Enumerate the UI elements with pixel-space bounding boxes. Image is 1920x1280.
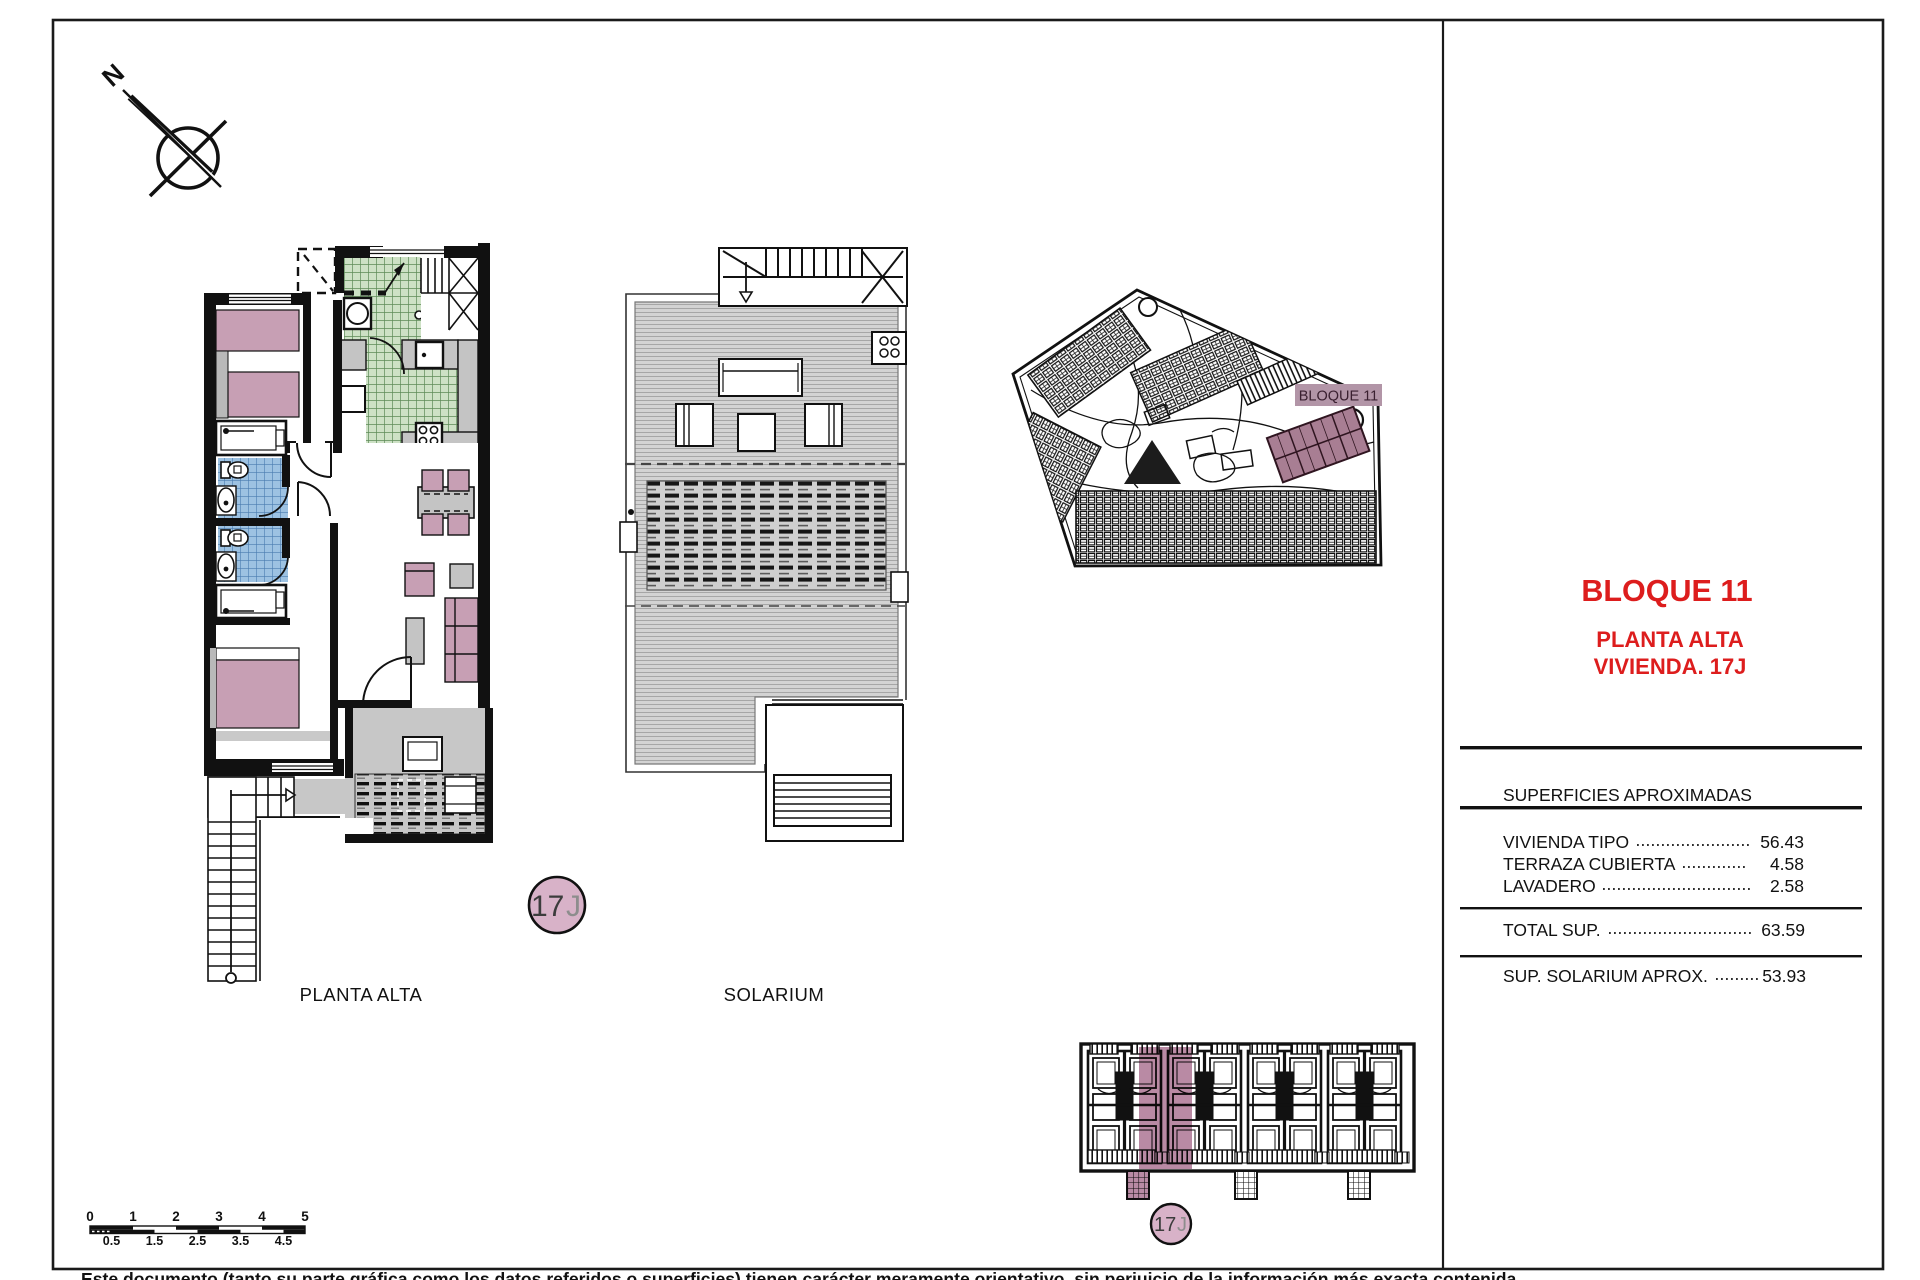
svg-text:2: 2 [172,1209,180,1224]
svg-text:4.5: 4.5 [275,1234,292,1248]
svg-text:3.5: 3.5 [232,1234,249,1248]
svg-text:Este documento (tanto su parte: Este documento (tanto su parte gráfica c… [81,1269,1516,1280]
svg-text:4.58: 4.58 [1770,854,1804,874]
svg-text:J: J [1177,1214,1187,1236]
svg-text:5: 5 [301,1209,309,1224]
svg-text:63.59: 63.59 [1761,920,1805,940]
svg-text:VIVIENDA TIPO: VIVIENDA TIPO [1503,832,1629,852]
svg-text:2.58: 2.58 [1770,876,1804,896]
svg-text:1: 1 [129,1209,137,1224]
svg-text:SUP. SOLARIUM APROX.: SUP. SOLARIUM APROX. [1503,966,1708,986]
svg-text:TOTAL SUP.: TOTAL SUP. [1503,920,1601,940]
svg-text:17: 17 [1154,1214,1176,1236]
svg-text:0.5: 0.5 [103,1234,120,1248]
svg-text:53.93: 53.93 [1762,966,1806,986]
svg-text:BLOQUE 11: BLOQUE 11 [1581,574,1752,608]
svg-text:SUPERFICIES APROXIMADAS: SUPERFICIES APROXIMADAS [1503,785,1752,805]
svg-text:TERRAZA CUBIERTA: TERRAZA CUBIERTA [1503,854,1676,874]
svg-text:3: 3 [215,1209,223,1224]
svg-text:PLANTA ALTA: PLANTA ALTA [1596,627,1744,652]
svg-text:VIVIENDA. 17J: VIVIENDA. 17J [1594,654,1747,679]
svg-text:4: 4 [258,1209,266,1224]
svg-text:PLANTA ALTA: PLANTA ALTA [300,984,423,1005]
svg-text:56.43: 56.43 [1760,832,1804,852]
svg-text:LAVADERO: LAVADERO [1503,876,1596,896]
svg-text:2.5: 2.5 [189,1234,206,1248]
svg-text:SOLARIUM: SOLARIUM [724,984,825,1005]
svg-text:17: 17 [531,890,564,923]
svg-text:0: 0 [86,1209,94,1224]
svg-text:J: J [566,890,581,923]
svg-text:1.5: 1.5 [146,1234,163,1248]
svg-text:BLOQUE 11: BLOQUE 11 [1299,389,1379,405]
